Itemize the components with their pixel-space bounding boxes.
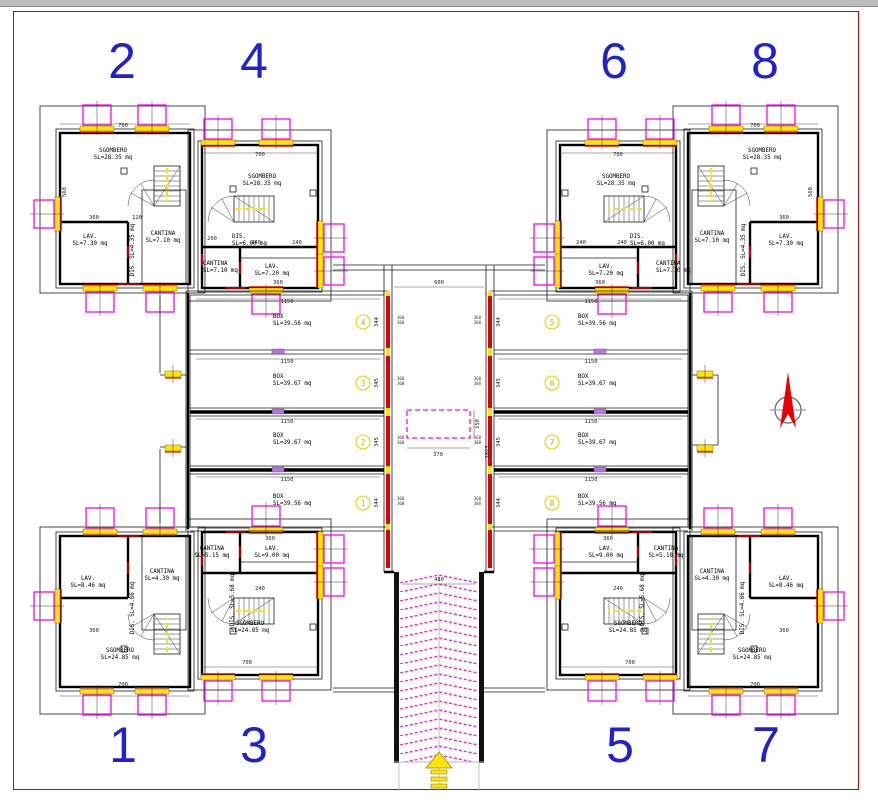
box-number-badge: 8	[550, 499, 555, 508]
garage-left-block	[186, 291, 392, 568]
room-label: LAV.	[83, 234, 97, 240]
dim-label: 600	[434, 280, 444, 286]
room-area: SL=8.46 mq	[769, 583, 804, 589]
room-label: LAV.	[265, 264, 279, 270]
room-area: SL=6.00 mq	[630, 241, 665, 247]
room-area: SL=7.20 mq	[589, 271, 624, 277]
unit-number-6: 6	[600, 33, 628, 89]
box-area: SL=39.67 mq	[273, 381, 311, 387]
room-label: CANTINA	[700, 569, 725, 575]
dim-label: 240	[292, 240, 302, 246]
room-area: SL=7.10 mq	[695, 238, 730, 244]
room-label: SGOMBERO	[614, 621, 642, 627]
room-label: DIS. SL=5.68 mq	[640, 574, 646, 626]
box-area: SL=39.56 mq	[578, 321, 616, 327]
unit-number-5: 5	[606, 717, 634, 773]
dim-label: 344	[374, 317, 380, 327]
dim-label: 360	[89, 628, 99, 634]
box-area: SL=39.67 mq	[578, 440, 616, 446]
dim-label: 1150	[585, 359, 598, 365]
dim-label: 360	[89, 215, 99, 221]
room-label: DIS. SL=4.35 mq	[130, 224, 136, 276]
room-area: SL=28.35 mq	[243, 181, 281, 187]
room-area: SL=24.85 mq	[231, 628, 269, 634]
dim-label: 344	[496, 498, 502, 508]
dim-label: 1150	[585, 477, 598, 483]
room-area: SL=7.10 mq	[203, 268, 238, 274]
room-label: SGOMBERO	[99, 148, 127, 154]
room-label: LAV.	[599, 546, 613, 552]
dim-label: 344	[496, 317, 502, 327]
room-label: SGOMBERO	[236, 621, 264, 627]
box-number-badge: 2	[361, 438, 366, 447]
room-area: SL=7.30 mq	[769, 241, 804, 247]
garage-right-block	[486, 291, 692, 568]
central-corridor	[333, 265, 545, 572]
room-label: DIS. SL=4.86 mq	[130, 582, 136, 634]
room-label: DIS. SL=4.35 mq	[741, 224, 747, 276]
room-label: CANTINA	[654, 546, 679, 552]
unit-number-3: 3	[240, 717, 268, 773]
room-label: LAV.	[265, 546, 279, 552]
dim-label: 345	[374, 437, 380, 447]
room-area: SL=4.30 mq	[145, 576, 180, 582]
dim-label: 360	[603, 536, 613, 542]
room-area: SL=28.35 mq	[597, 181, 635, 187]
room-area: SL=28.35 mq	[94, 155, 132, 161]
room-label: LAV.	[81, 576, 95, 582]
box-area: SL=39.56 mq	[273, 321, 311, 327]
room-label: SGOMBERO	[602, 174, 630, 180]
opening-mark: 300	[397, 501, 405, 506]
box-label: BOX	[273, 494, 284, 500]
dim-label: 150	[475, 419, 481, 429]
floor-plan-page: N 2 4 6 8 1 3 5 7 SGOMBERO SL=28.35 mq L…	[0, 0, 878, 804]
opening-mark: 300	[474, 381, 482, 386]
floor-plan-drawing: N 2 4 6 8 1 3 5 7 SGOMBERO SL=28.35 mq L…	[0, 0, 878, 804]
dim-label: 700	[118, 682, 128, 688]
box-area: SL=39.56 mq	[578, 501, 616, 507]
dim-label: 345	[496, 378, 502, 388]
room-label: CANTINA	[700, 231, 725, 237]
room-label: SGOMBERO	[748, 148, 776, 154]
room-label: SGOMBERO	[248, 174, 276, 180]
box-number-badge: 4	[361, 318, 366, 327]
room-label: DIS.	[630, 234, 644, 240]
room-area: SL=9.00 mq	[589, 553, 624, 559]
dim-label: 700	[613, 152, 623, 158]
dim-label: 344	[374, 498, 380, 508]
dim-label: 360	[779, 215, 789, 221]
box-number-badge: 3	[361, 379, 366, 388]
dim-label: 1150	[281, 359, 294, 365]
room-label: DIS. SL=5.68 mq	[230, 574, 236, 626]
room-label: CANTINA	[203, 261, 228, 267]
opening-mark: 300	[397, 381, 405, 386]
opening-mark: 300	[397, 440, 405, 445]
room-label: SGOMBERO	[106, 648, 134, 654]
box-number-badge: 5	[550, 318, 555, 327]
room-label: DIS.	[232, 234, 246, 240]
unit-number-8: 8	[751, 33, 779, 89]
room-label: CANTINA	[656, 261, 681, 267]
dim-label: 240	[255, 586, 265, 592]
room-area: SL=7.10 mq	[656, 268, 691, 274]
dim-label: 360	[595, 280, 605, 286]
dim-label: 120	[132, 215, 142, 221]
dim-label: 700	[750, 682, 760, 688]
box-area: SL=39.67 mq	[578, 381, 616, 387]
unit-number-4: 4	[240, 33, 268, 89]
box-label: BOX	[578, 374, 589, 380]
dim-label: 700	[750, 123, 760, 129]
box-label: BOX	[578, 314, 589, 320]
courtyard-dashed-outline	[407, 410, 470, 438]
box-number-badge: 7	[550, 438, 555, 447]
box-label: BOX	[578, 433, 589, 439]
unit-8-plan	[673, 101, 848, 316]
room-area: SL=9.00 mq	[255, 553, 290, 559]
room-label: LAV.	[779, 576, 793, 582]
room-label: CANTINA	[200, 546, 225, 552]
room-label: SGOMBERO	[738, 648, 766, 654]
opening-mark: 300	[474, 440, 482, 445]
room-label: DIS. SL=4.86 mq	[740, 582, 746, 634]
exterior-boundary	[160, 295, 718, 523]
room-label: LAV.	[599, 264, 613, 270]
driveway-ramp	[333, 572, 545, 791]
dim-label: 370	[433, 452, 443, 458]
box-label: BOX	[273, 374, 284, 380]
room-area: SL=7.30 mq	[73, 241, 108, 247]
dim-label: 240	[613, 586, 623, 592]
unit-number-7: 7	[752, 717, 780, 773]
dim-label: 480	[434, 577, 444, 583]
room-label: CANTINA	[150, 569, 175, 575]
dim-label: 360	[265, 536, 275, 542]
dim-label: 1150	[281, 477, 294, 483]
dim-label: 360	[779, 628, 789, 634]
dim-label: 345	[374, 378, 380, 388]
dim-label: 1150	[585, 299, 598, 305]
room-label: CANTINA	[151, 231, 176, 237]
dim-label: 1150	[281, 299, 294, 305]
room-area: SL=6.00 mq	[232, 241, 267, 247]
dim-label: 700	[625, 660, 635, 666]
unit-4-plan	[188, 115, 348, 318]
dim-label: 240	[576, 240, 586, 246]
unit-2-plan	[30, 101, 205, 316]
dim-label: 240	[251, 240, 261, 246]
box-area: SL=39.56 mq	[273, 501, 311, 507]
box-label: BOX	[578, 494, 589, 500]
unit-7-plan	[673, 504, 848, 719]
room-area: SL=24.85 mq	[609, 628, 647, 634]
box-label: BOX	[273, 433, 284, 439]
unit-5-plan	[530, 502, 690, 705]
box-number-badge: 6	[550, 379, 555, 388]
dim-label: 700	[118, 123, 128, 129]
box-label: BOX	[273, 314, 284, 320]
unit-number-2: 2	[108, 33, 136, 89]
dim-label: 560	[62, 187, 68, 197]
room-area: SL=24.85 mq	[101, 655, 139, 661]
opening-mark: 300	[397, 320, 405, 325]
dim-label: 345	[496, 437, 502, 447]
dim-label: 700	[242, 660, 252, 666]
unit-6-plan	[530, 115, 690, 318]
dim-label: 1150	[585, 419, 598, 425]
opening-mark: 300	[474, 320, 482, 325]
box-number-badge: 1	[361, 499, 366, 508]
dim-label: 1150	[281, 419, 294, 425]
room-label: LAV.	[779, 234, 793, 240]
dim-label: 1823	[485, 446, 491, 459]
opening-mark: 300	[474, 501, 482, 506]
unit-3-plan	[188, 502, 348, 705]
room-area: SL=4.30 mq	[695, 576, 730, 582]
dim-label: 700	[255, 152, 265, 158]
room-area: SL=5.15 mq	[195, 553, 230, 559]
north-arrow-icon: N	[770, 372, 806, 428]
box-area: SL=39.67 mq	[273, 440, 311, 446]
room-area: SL=8.46 mq	[71, 583, 106, 589]
dim-label: 240	[617, 240, 627, 246]
dim-label: 200	[207, 236, 217, 242]
dim-label: 360	[273, 280, 283, 286]
room-area: SL=7.20 mq	[255, 271, 290, 277]
room-area: SL=28.35 mq	[743, 155, 781, 161]
room-area: SL=24.85 mq	[733, 655, 771, 661]
unit-number-1: 1	[109, 717, 137, 773]
dim-label: 560	[808, 187, 814, 197]
room-area: SL=5.18 mq	[649, 553, 684, 559]
room-area: SL=7.10 mq	[146, 238, 181, 244]
